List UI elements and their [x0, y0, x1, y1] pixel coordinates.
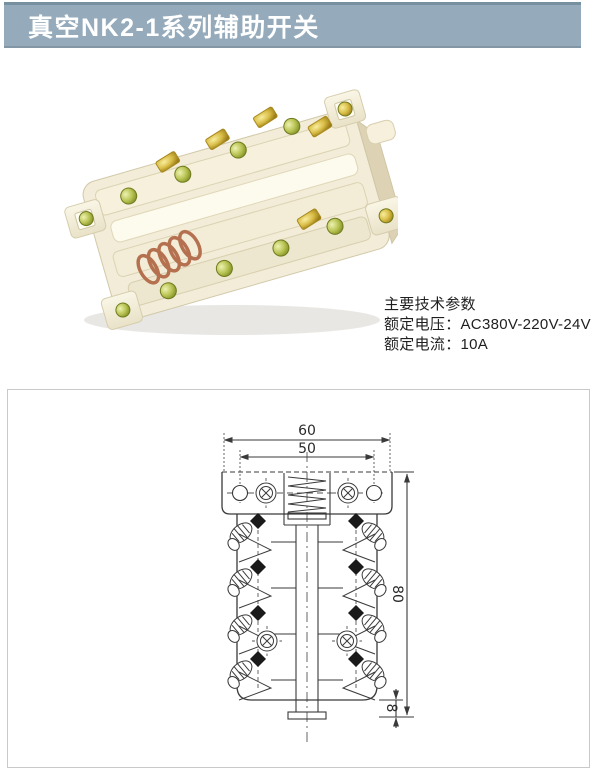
dimension-8: 8	[379, 689, 403, 728]
dimension-diagram-panel: 60 50 80 8	[7, 389, 590, 768]
specs-heading: 主要技术参数	[384, 295, 596, 315]
mounting-hole-left	[233, 486, 248, 501]
rated-voltage: 额定电压：AC380V-220V-24V	[384, 315, 596, 335]
dimension-80-label: 80	[389, 585, 405, 603]
screw-icon	[332, 626, 362, 656]
rated-current: 额定电流：10A	[384, 335, 596, 355]
dimension-60-label: 60	[298, 423, 316, 439]
dimension-50: 50	[240, 441, 374, 457]
page-title: 真空NK2-1系列辅助开关	[4, 8, 320, 44]
title-bar: 真空NK2-1系列辅助开关	[4, 2, 581, 48]
actuator-knob	[365, 119, 397, 146]
terminal-symbol	[222, 513, 296, 562]
switch-body	[62, 75, 398, 333]
terminal-symbol	[318, 513, 392, 562]
product-photo	[62, 58, 398, 350]
dimension-8-label: 8	[383, 704, 399, 713]
terminal-symbol	[222, 559, 296, 608]
screw-icon	[252, 626, 282, 656]
dimension-60: 60	[224, 423, 390, 440]
screw-icon	[333, 478, 363, 508]
dimension-50-label: 50	[298, 441, 316, 457]
screw-icon	[251, 478, 281, 508]
terminal-symbol	[222, 651, 296, 700]
dimension-drawing: 60 50 80 8	[8, 390, 589, 767]
mounting-hole-right	[367, 486, 382, 501]
tech-specs: 主要技术参数 额定电压：AC380V-220V-24V 额定电流：10A	[384, 295, 596, 355]
product-photo-illustration	[62, 58, 398, 350]
terminal-symbol	[318, 651, 392, 700]
terminal-symbol	[318, 559, 392, 608]
